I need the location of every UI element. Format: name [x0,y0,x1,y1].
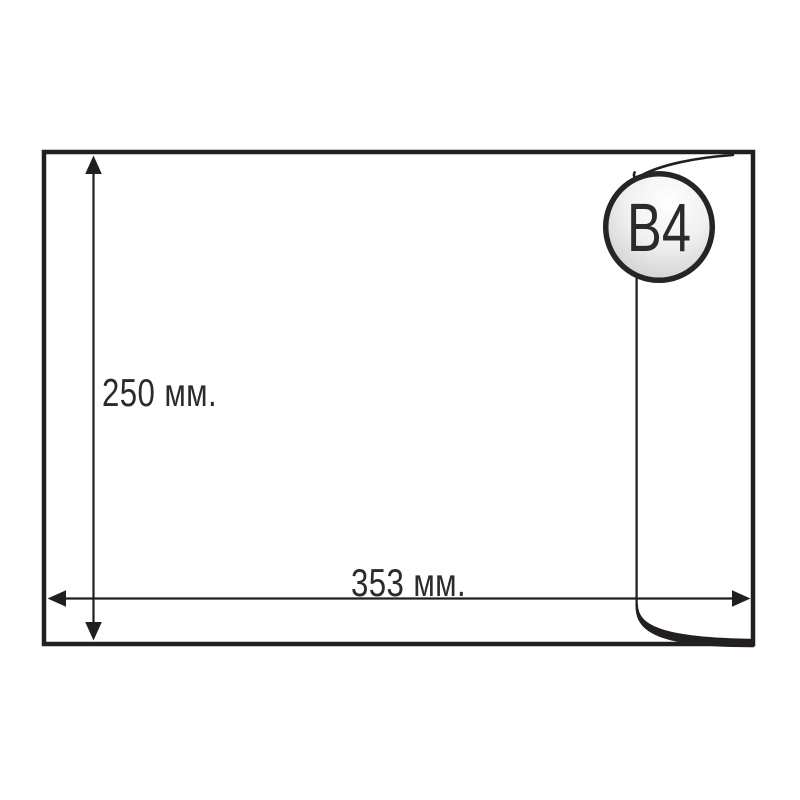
envelope-dimension-diagram: B4 250 мм. 353 мм. [0,0,800,800]
height-dimension-label: 250 мм. [102,374,217,413]
size-badge-label: B4 [613,167,704,287]
width-dimension-label: 353 мм. [351,564,466,603]
